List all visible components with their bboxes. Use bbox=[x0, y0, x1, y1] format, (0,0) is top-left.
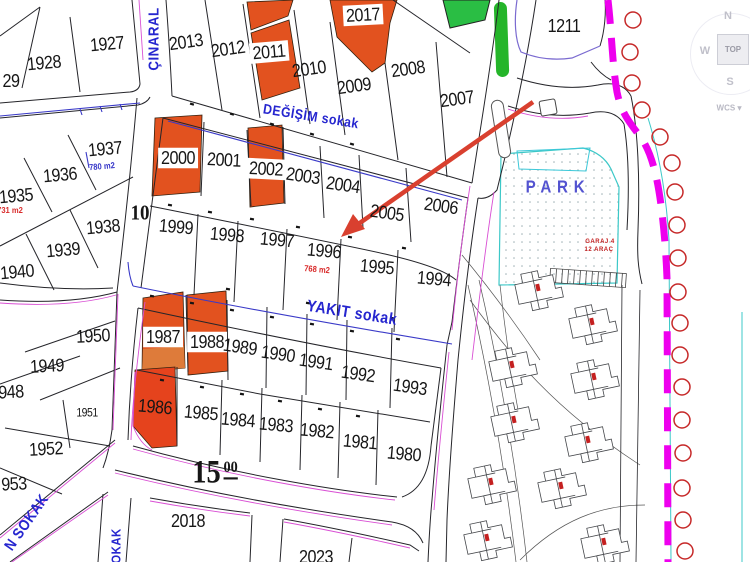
viewcube-wcs-label: WCS bbox=[717, 104, 736, 113]
parcel-label-2006: 2006 bbox=[423, 195, 459, 218]
parcel-label-1948: 948 bbox=[0, 382, 24, 402]
parcel-label-29: 29 bbox=[2, 72, 19, 90]
dimension-15: 15 bbox=[192, 455, 221, 491]
parcel-label-1994: 1994 bbox=[416, 268, 452, 289]
parcel-label-2013: 2013 bbox=[168, 31, 204, 54]
parcel-label-1949: 1949 bbox=[30, 356, 65, 376]
parcel-label-1211: 1211 bbox=[548, 17, 581, 35]
parcel-label-2023: 2023 bbox=[299, 548, 333, 562]
parcel-label-1995: 1995 bbox=[359, 256, 395, 277]
parcel-label-2009: 2009 bbox=[336, 75, 372, 98]
wcs-dropdown-arrow-icon: ▾ bbox=[737, 104, 741, 113]
building-footprints bbox=[462, 267, 631, 562]
viewcube-west[interactable]: W bbox=[700, 45, 710, 57]
parcel-label-1935: 1935 bbox=[0, 185, 34, 206]
street-label-cinaral: ÇINARAL bbox=[145, 7, 160, 70]
parcel-label-1928: 1928 bbox=[26, 52, 62, 73]
parcel-label-2008: 2008 bbox=[390, 58, 426, 81]
parcel-label-1993: 1993 bbox=[392, 376, 428, 399]
parcel-label-1980: 1980 bbox=[386, 443, 422, 464]
dimension-label-15-00: 1500 bbox=[192, 457, 238, 489]
parcel-label-2010: 2010 bbox=[291, 58, 327, 81]
parcel-label-1937: 1937 bbox=[87, 138, 123, 159]
parcel-label-2017: 2017 bbox=[343, 4, 384, 27]
viewcube-south[interactable]: S bbox=[726, 76, 733, 88]
park-area bbox=[499, 148, 619, 285]
map-viewport[interactable]: 29 1928 1927 2013 2012 2011 2017 2010 20… bbox=[0, 0, 750, 562]
parcel-label-1936: 1936 bbox=[42, 164, 78, 185]
parcel-label-1927: 1927 bbox=[89, 33, 125, 54]
parcel-label-1984: 1984 bbox=[220, 409, 256, 430]
parcel-label-1950: 1950 bbox=[76, 326, 111, 346]
parcel-label-1953: 953 bbox=[1, 474, 27, 494]
parcel-label-1989: 1989 bbox=[222, 336, 258, 359]
parcel-label-1951: 1951 bbox=[76, 408, 97, 420]
area-label-731: 731 m2 bbox=[0, 207, 23, 216]
parcel-label-1997: 1997 bbox=[259, 229, 295, 250]
parcel-label-2012: 2012 bbox=[210, 38, 246, 61]
teal-lines bbox=[648, 118, 742, 562]
parcel-label-2005: 2005 bbox=[369, 202, 405, 225]
parcel-label-1983: 1983 bbox=[258, 414, 294, 435]
dimension-15-superscript: 00 bbox=[224, 459, 238, 480]
parcel-label-1982: 1982 bbox=[299, 420, 335, 441]
parcel-label-1986: 1986 bbox=[137, 396, 173, 417]
street-label-sokak-vertical: SOKAK bbox=[110, 528, 123, 562]
viewcube-top-face[interactable]: TOP bbox=[717, 34, 749, 65]
parcel-label-2011: 2011 bbox=[249, 40, 289, 64]
garage-label-line2: 12 ARAÇ bbox=[585, 247, 614, 253]
parcel-label-1999: 1999 bbox=[158, 216, 194, 237]
parcel-label-1991: 1991 bbox=[298, 351, 334, 374]
parcel-label-1940: 1940 bbox=[0, 261, 35, 282]
parcel-label-2002: 2002 bbox=[246, 158, 287, 181]
viewcube-north[interactable]: N bbox=[724, 10, 732, 22]
parcel-label-2018: 2018 bbox=[171, 512, 205, 530]
parcel-label-1992: 1992 bbox=[340, 363, 376, 386]
parcel-label-2000: 2000 bbox=[158, 148, 198, 169]
tree-markers bbox=[622, 12, 693, 559]
parcel-label-2003: 2003 bbox=[285, 165, 321, 188]
parcel-label-1981: 1981 bbox=[342, 431, 378, 452]
parcel-label-1939: 1939 bbox=[45, 239, 81, 260]
parcel-label-1990: 1990 bbox=[260, 343, 296, 366]
parcel-label-1996: 1996 bbox=[306, 240, 342, 261]
dimension-label-10: 10 bbox=[131, 202, 150, 224]
viewcube-wcs-menu[interactable]: WCS ▾ bbox=[717, 104, 742, 113]
cadastral-linework bbox=[0, 0, 750, 562]
parcel-label-2001: 2001 bbox=[207, 150, 242, 170]
parcel-label-1985: 1985 bbox=[183, 402, 219, 423]
parcel-label-1938: 1938 bbox=[85, 216, 121, 237]
park-label: PARK bbox=[526, 179, 591, 196]
garage-label-line1: GARAJ 4 bbox=[585, 239, 615, 245]
parcel-label-2007: 2007 bbox=[439, 88, 475, 111]
parcel-label-1987: 1987 bbox=[143, 327, 183, 348]
green-area bbox=[443, 0, 509, 77]
parcel-label-1998: 1998 bbox=[209, 224, 245, 245]
parcel-label-1952: 1952 bbox=[29, 439, 64, 459]
parcel-label-2004: 2004 bbox=[325, 174, 361, 197]
parcel-label-1988: 1988 bbox=[187, 332, 227, 353]
